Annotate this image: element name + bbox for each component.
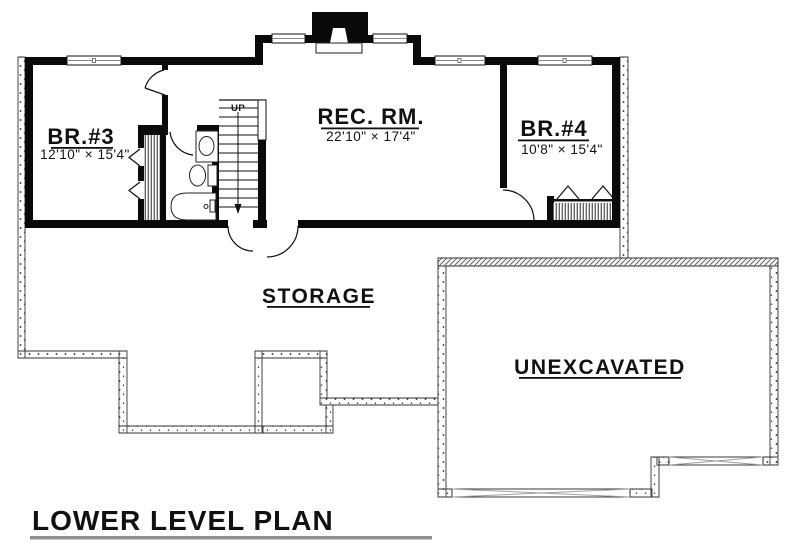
sink-basin [199, 137, 214, 156]
drawing-background [0, 0, 800, 556]
window [435, 56, 485, 65]
room-label-br4: BR.#4 [520, 116, 587, 141]
window [67, 56, 121, 65]
toilet-tank [208, 165, 217, 186]
beam-panel [669, 457, 763, 465]
room-dims-rec: 22'10" × 17'4" [326, 129, 416, 144]
firebox [330, 28, 348, 43]
window [373, 34, 407, 43]
plan-title-underline [30, 536, 432, 540]
room-label-unexcavated: UNEXCAVATED [514, 356, 686, 379]
br3-closet-shelving [144, 135, 160, 220]
bathtub [171, 193, 216, 220]
floor-plan-drawing: UP BR.#3 12'10" × 15'4" REC. RM. 22'10" … [0, 0, 800, 556]
room-label-underline [267, 306, 370, 308]
br4-closet-shelving [553, 203, 612, 220]
br4-closet-front-wall [554, 199, 612, 202]
tub-faucet [210, 200, 215, 212]
stair-railing [258, 100, 266, 140]
room-dims-br3: 12'10" × 15'4" [40, 147, 130, 162]
stair-up-label: UP [231, 103, 245, 114]
room-label-underline [519, 377, 681, 379]
room-dims-br4: 10'8" × 15'4" [521, 142, 603, 157]
unexcavated-top-wall [438, 258, 778, 266]
room-label-rec: REC. RM. [318, 104, 425, 129]
window [538, 56, 592, 65]
floor-plan-page: UP BR.#3 12'10" × 15'4" REC. RM. 22'10" … [0, 0, 800, 556]
toilet-bowl [190, 165, 206, 186]
tub-drain [204, 205, 208, 209]
room-label-br3: BR.#3 [47, 124, 114, 149]
hearth [316, 43, 362, 53]
plan-title: LOWER LEVEL PLAN [32, 505, 334, 536]
window [272, 34, 305, 43]
beam-panel [452, 489, 630, 497]
room-label-storage: STORAGE [262, 285, 376, 308]
